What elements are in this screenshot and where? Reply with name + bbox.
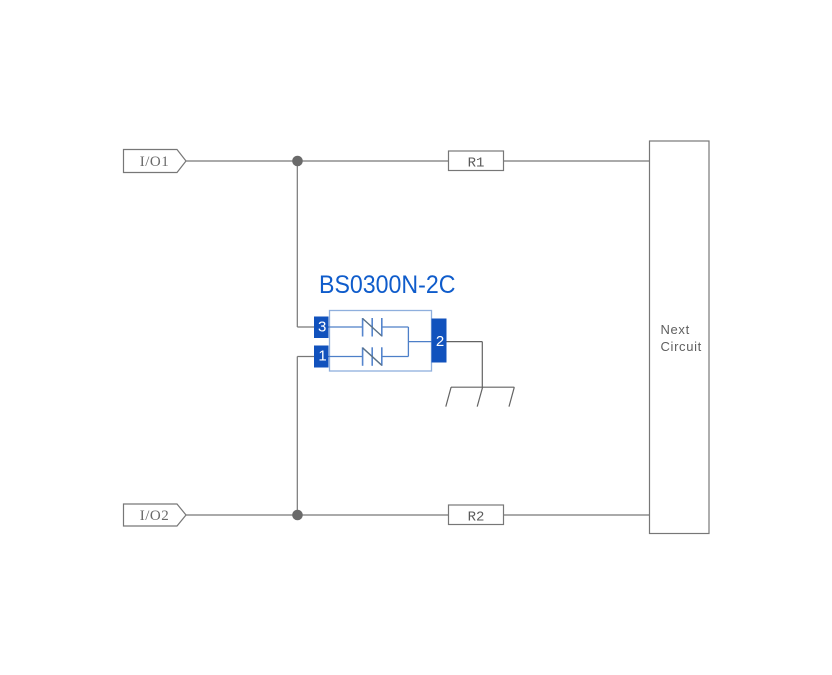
svg-text:1: 1 [318, 347, 326, 364]
svg-text:3: 3 [318, 319, 326, 336]
svg-text:R1: R1 [468, 156, 485, 172]
svg-text:2: 2 [436, 333, 444, 350]
svg-text:Circuit: Circuit [661, 339, 702, 354]
svg-text:Next: Next [661, 322, 690, 337]
svg-text:I/O2: I/O2 [140, 508, 170, 524]
svg-text:BS0300N-2C: BS0300N-2C [319, 272, 456, 299]
svg-text:I/O1: I/O1 [140, 154, 170, 170]
svg-text:R2: R2 [468, 510, 485, 526]
